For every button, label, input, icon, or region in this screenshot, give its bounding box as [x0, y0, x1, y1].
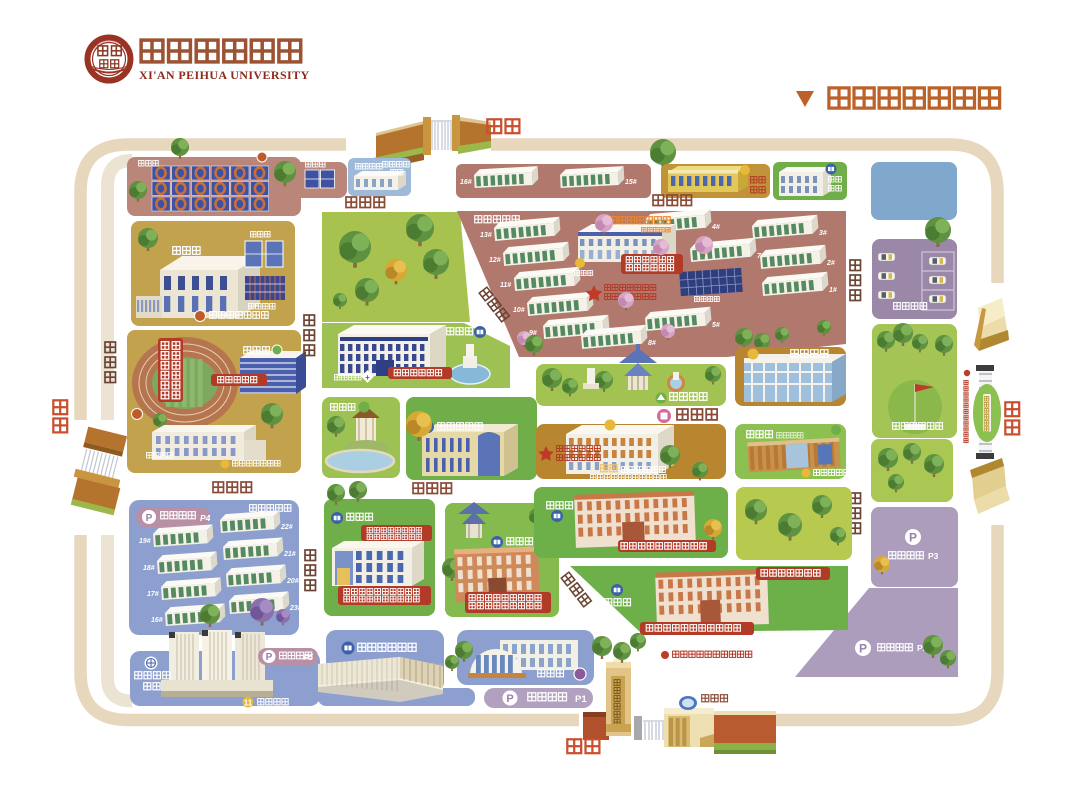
svg-text:20#: 20#	[286, 578, 299, 585]
svg-text:5#: 5#	[712, 322, 720, 329]
svg-text:2#: 2#	[826, 260, 835, 267]
svg-text:22#: 22#	[280, 524, 293, 531]
svg-text:4#: 4#	[711, 224, 720, 231]
svg-text:18#: 18#	[143, 565, 155, 572]
svg-text:P3: P3	[928, 551, 939, 561]
svg-text:23#: 23#	[289, 605, 302, 612]
svg-text:P: P	[266, 652, 273, 663]
svg-text:19#: 19#	[139, 538, 151, 545]
svg-text:10#: 10#	[513, 307, 525, 314]
svg-text:17#: 17#	[147, 591, 159, 598]
svg-text:16#: 16#	[460, 179, 472, 186]
svg-text:P: P	[146, 513, 153, 524]
svg-text:12#: 12#	[489, 257, 501, 264]
svg-text:P1: P1	[575, 694, 587, 705]
svg-text:8#: 8#	[648, 340, 656, 347]
svg-text:+: +	[365, 373, 370, 382]
svg-text:11#: 11#	[500, 282, 511, 289]
svg-text:P: P	[506, 693, 513, 705]
svg-text:P: P	[909, 530, 917, 544]
svg-text:P5: P5	[303, 653, 313, 662]
svg-text:13#: 13#	[480, 232, 492, 239]
svg-text:11: 11	[244, 699, 253, 708]
svg-text:P: P	[859, 641, 867, 655]
svg-text:21#: 21#	[283, 551, 296, 558]
svg-text:15#: 15#	[625, 179, 637, 186]
svg-text:P4: P4	[200, 513, 211, 523]
svg-text:XI'AN PEIHUA UNIVERSITY: XI'AN PEIHUA UNIVERSITY	[139, 68, 310, 82]
svg-text:3#: 3#	[819, 230, 827, 237]
svg-text:1#: 1#	[829, 287, 837, 294]
svg-text:16#: 16#	[151, 617, 163, 624]
